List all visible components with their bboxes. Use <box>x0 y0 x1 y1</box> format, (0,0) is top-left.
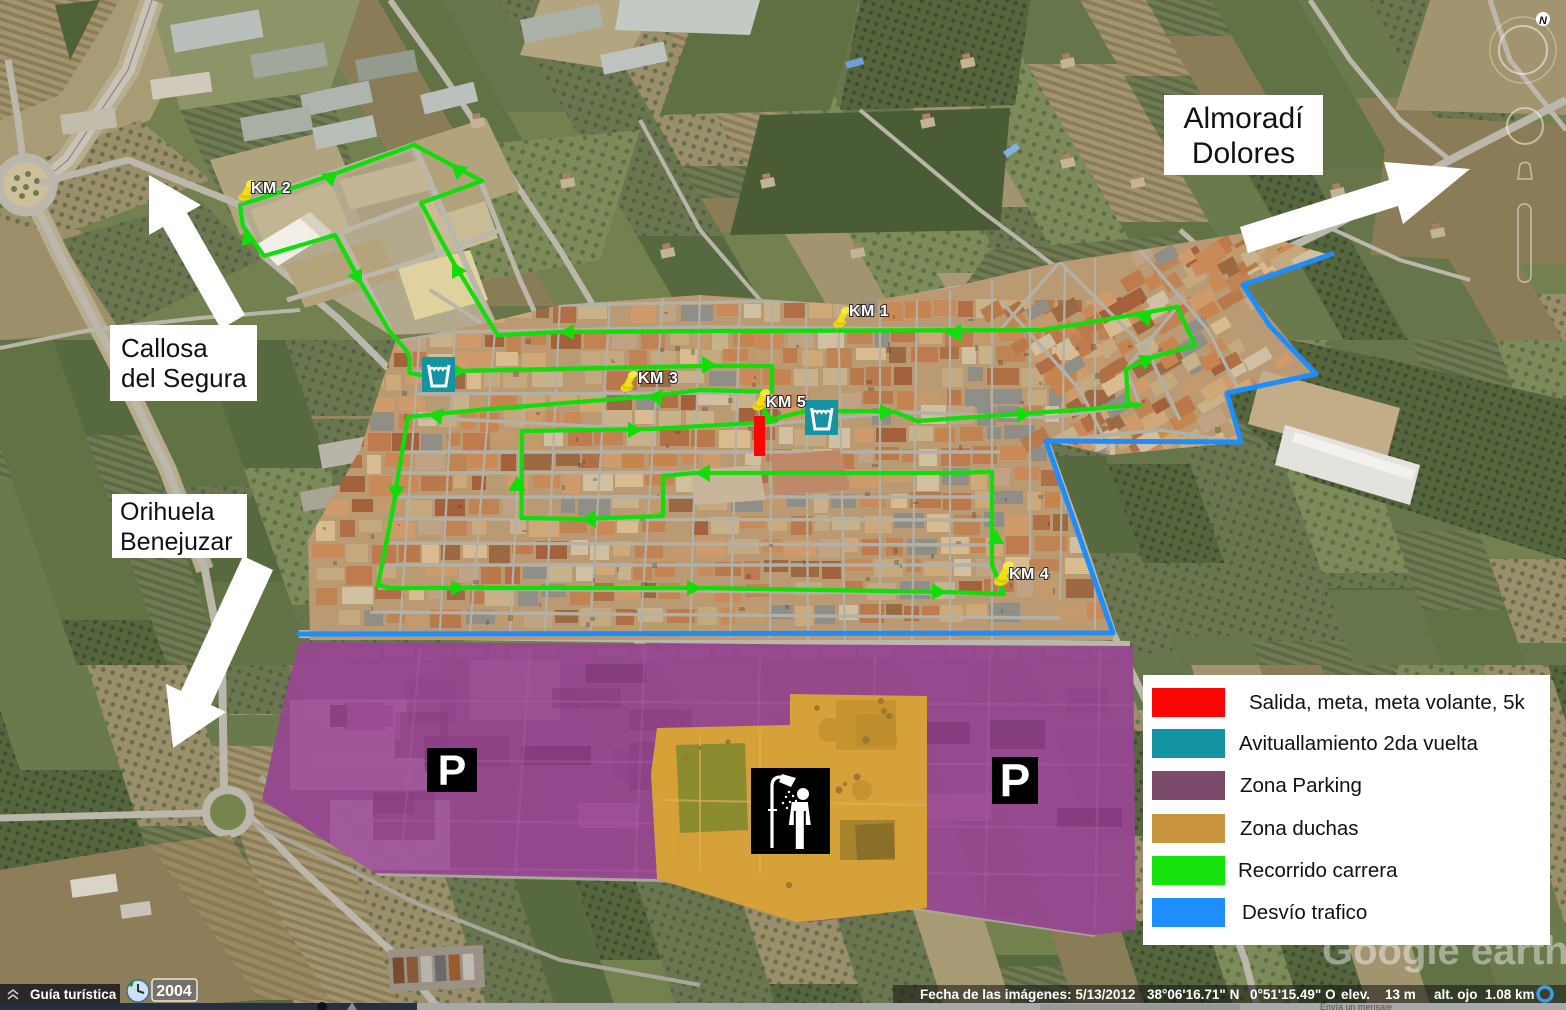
svg-text:38°06'16.71" N: 38°06'16.71" N <box>1147 987 1239 1002</box>
svg-text:P: P <box>438 747 467 795</box>
svg-text:del Segura: del Segura <box>121 363 247 393</box>
svg-text:Salida, meta, meta volante, 5k: Salida, meta, meta volante, 5k <box>1249 691 1526 714</box>
svg-text:0°51'15.49" O: 0°51'15.49" O <box>1250 987 1336 1002</box>
svg-text:Guía turística: Guía turística <box>30 987 117 1002</box>
svg-text:Google earth: Google earth <box>1322 929 1566 973</box>
svg-text:KM 3: KM 3 <box>638 370 678 387</box>
svg-text:Recorrido carrera: Recorrido carrera <box>1238 859 1398 882</box>
svg-text:Orihuela: Orihuela <box>120 498 215 526</box>
svg-text:Dolores: Dolores <box>1192 137 1295 170</box>
svg-text:elev.: elev. <box>1341 987 1370 1002</box>
svg-text:KM 4: KM 4 <box>1009 566 1049 583</box>
svg-text:KM 2: KM 2 <box>251 180 291 197</box>
svg-text:Benejuzar: Benejuzar <box>120 528 233 556</box>
svg-text:Envía un mensaje: Envía un mensaje <box>1320 1002 1392 1010</box>
svg-text:P: P <box>1000 754 1031 806</box>
svg-text:Zona Parking: Zona Parking <box>1240 774 1362 797</box>
svg-text:N: N <box>1539 15 1548 27</box>
svg-text:2004: 2004 <box>156 983 192 1000</box>
svg-text:alt. ojo: alt. ojo <box>1434 987 1478 1002</box>
svg-text:Desvío trafico: Desvío trafico <box>1242 901 1367 924</box>
svg-text:1.08 km: 1.08 km <box>1485 987 1535 1002</box>
svg-text:Avituallamiento 2da vuelta: Avituallamiento 2da vuelta <box>1239 732 1479 755</box>
svg-text:Almoradí: Almoradí <box>1183 102 1304 135</box>
svg-text:Callosa: Callosa <box>121 333 208 363</box>
svg-text:Fecha de las imágenes: 5/13/20: Fecha de las imágenes: 5/13/2012 <box>920 987 1135 1002</box>
svg-text:KM 5: KM 5 <box>766 394 806 411</box>
svg-text:KM 1: KM 1 <box>849 303 889 320</box>
svg-text:13 m: 13 m <box>1385 987 1416 1002</box>
svg-text:Zona duchas: Zona duchas <box>1240 817 1359 840</box>
